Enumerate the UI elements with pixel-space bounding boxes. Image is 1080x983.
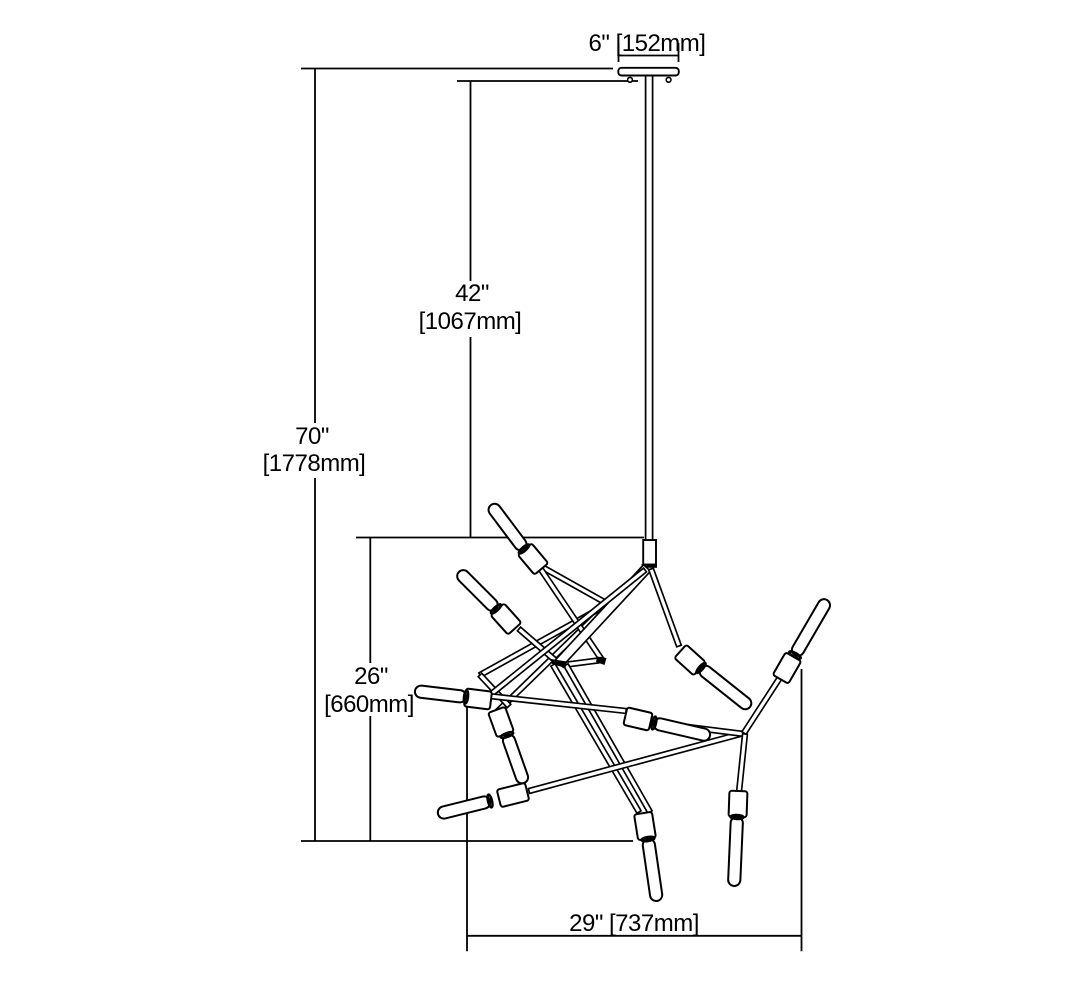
svg-text:[1067mm]: [1067mm] (419, 308, 522, 335)
svg-text:42": 42" (455, 280, 489, 307)
svg-text:[660mm]: [660mm] (324, 691, 414, 718)
svg-text:29" [737mm]: 29" [737mm] (569, 910, 699, 937)
svg-text:6" [152mm]: 6" [152mm] (589, 30, 706, 57)
svg-text:70": 70" (295, 423, 329, 450)
svg-text:[1778mm]: [1778mm] (263, 450, 366, 477)
svg-text:26": 26" (354, 663, 388, 690)
